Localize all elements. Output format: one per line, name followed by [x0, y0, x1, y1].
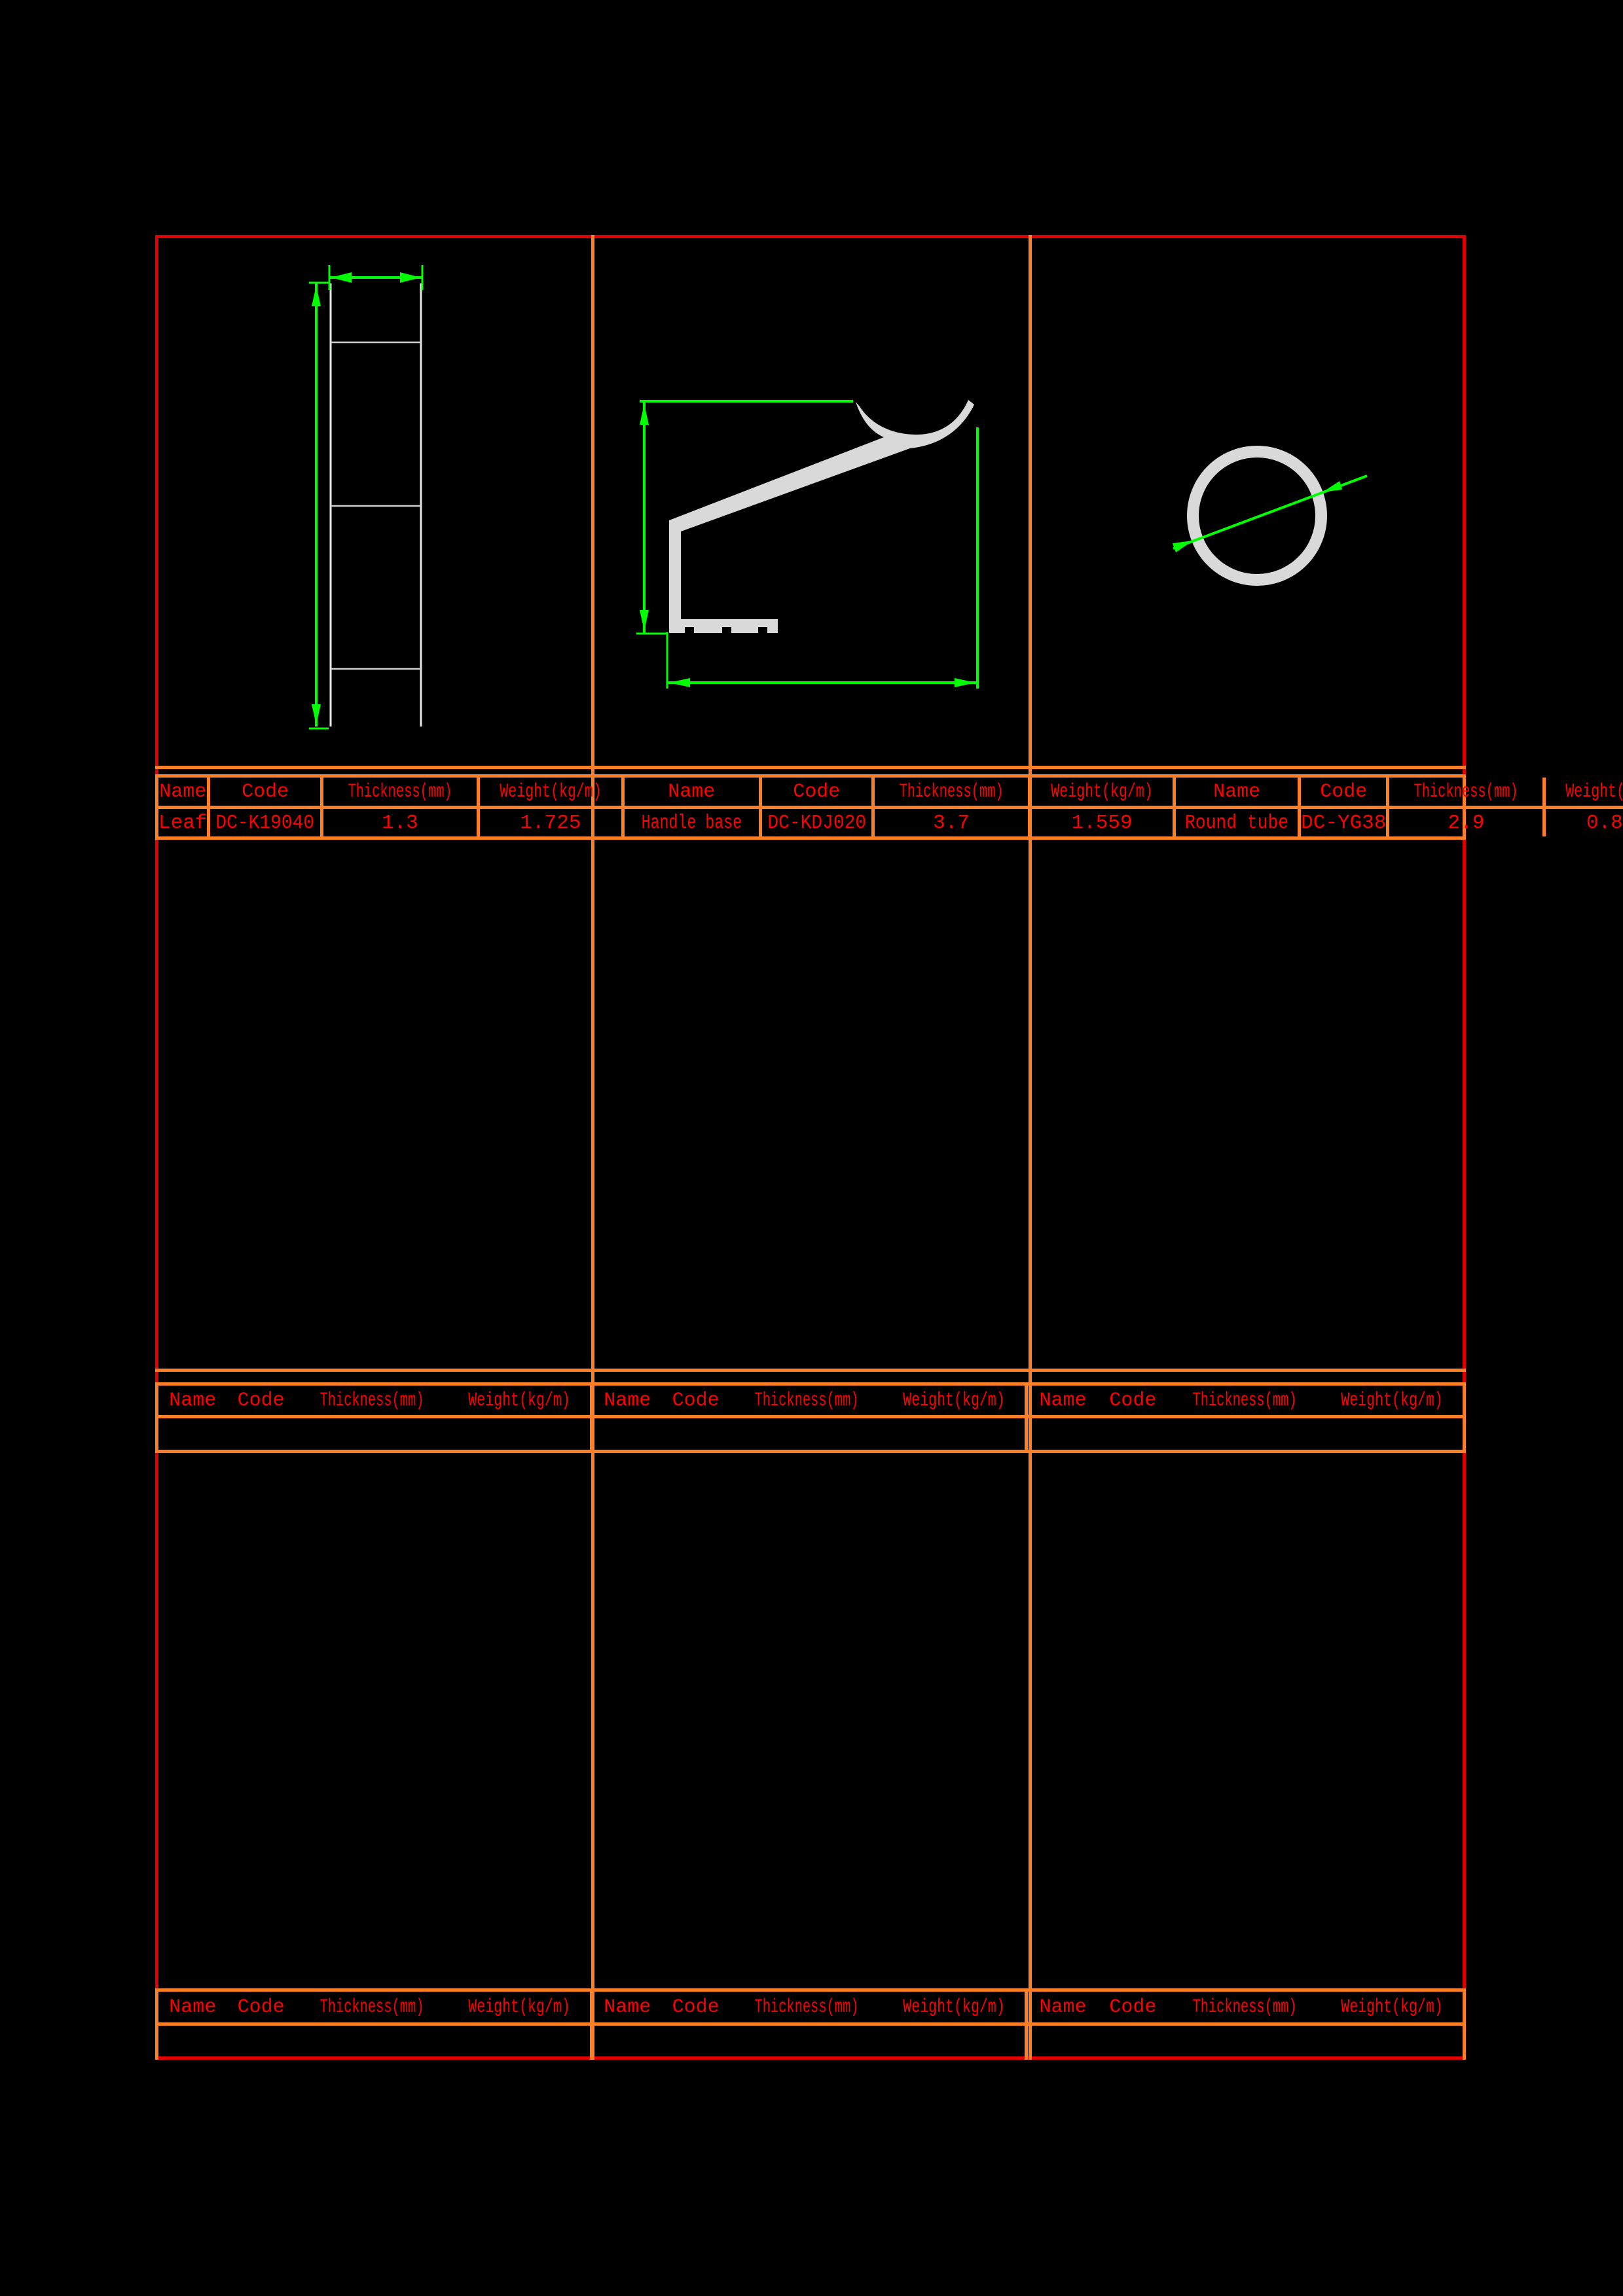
- value-weight: 0.863: [1546, 809, 1623, 836]
- spec-panel-handle-base: Name Code Thickness(mm) Weight(kg/m) Han…: [625, 778, 1176, 836]
- empty-data-row: [593, 1418, 1025, 1450]
- header-weight: Weight(kg/m): [1546, 778, 1623, 809]
- value-thickness: 2.9: [1389, 809, 1546, 836]
- row-separator-2: [155, 1369, 1466, 1372]
- spec-table-bottom: Name Code Thickness(mm) Weight(kg/m) Nam…: [155, 1988, 1466, 2060]
- spec-panel-empty: Name Code Thickness(mm) Weight(kg/m): [1028, 1992, 1463, 2060]
- value-code: DC-KDJ020: [762, 809, 875, 836]
- spec-panel-empty: Name Code Thickness(mm) Weight(kg/m): [593, 1386, 1028, 1450]
- value-weight: 1.559: [1031, 809, 1173, 836]
- header-name: Name: [1176, 778, 1301, 809]
- panel-divider-2: [1029, 235, 1032, 2060]
- spec-table-top: Name Code Thickness(mm) Weight(kg/m) Lea…: [155, 774, 1466, 840]
- header-code: Code: [227, 1992, 295, 2026]
- header-name: Name: [593, 1386, 661, 1418]
- spec-panel-empty: Name Code Thickness(mm) Weight(kg/m): [1028, 1386, 1463, 1450]
- empty-data-row: [158, 2026, 590, 2060]
- header-thickness: Thickness(mm): [1168, 1992, 1321, 2026]
- spec-panel-leaf: Name Code Thickness(mm) Weight(kg/m) Lea…: [158, 778, 625, 836]
- sheet-outer-border: [155, 235, 1466, 2060]
- spec-panel-empty: Name Code Thickness(mm) Weight(kg/m): [158, 1386, 593, 1450]
- header-code: Code: [762, 778, 875, 809]
- value-code: DC-K19040: [210, 809, 323, 836]
- header-name: Name: [158, 1992, 227, 2026]
- header-thickness: Thickness(mm): [295, 1992, 448, 2026]
- panel-divider-1: [591, 235, 594, 2060]
- empty-data-row: [1028, 2026, 1463, 2060]
- header-thickness: Thickness(mm): [323, 778, 480, 809]
- header-name: Name: [1028, 1992, 1098, 2026]
- value-weight: 1.725: [480, 809, 621, 836]
- header-thickness: Thickness(mm): [1168, 1386, 1321, 1418]
- header-weight: Weight(kg/m): [883, 1386, 1025, 1418]
- header-code: Code: [1098, 1386, 1168, 1418]
- header-weight: Weight(kg/m): [1321, 1992, 1463, 2026]
- header-weight: Weight(kg/m): [448, 1386, 590, 1418]
- value-name: Handle base: [625, 809, 762, 836]
- header-thickness: Thickness(mm): [730, 1992, 883, 2026]
- header-code: Code: [1098, 1992, 1168, 2026]
- header-weight: Weight(kg/m): [448, 1992, 590, 2026]
- header-thickness: Thickness(mm): [1389, 778, 1546, 809]
- empty-data-row: [593, 2026, 1025, 2060]
- value-name: Round tube: [1176, 809, 1301, 836]
- header-weight: Weight(kg/m): [1321, 1386, 1463, 1418]
- header-weight: Weight(kg/m): [480, 778, 621, 809]
- empty-data-row: [158, 1418, 590, 1450]
- value-name: Leaf: [158, 809, 210, 836]
- header-thickness: Thickness(mm): [875, 778, 1031, 809]
- header-thickness: Thickness(mm): [730, 1386, 883, 1418]
- header-code: Code: [227, 1386, 295, 1418]
- empty-data-row: [1028, 1418, 1463, 1450]
- header-thickness: Thickness(mm): [295, 1386, 448, 1418]
- header-code: Code: [1301, 778, 1389, 809]
- header-code: Code: [210, 778, 323, 809]
- spec-panel-empty: Name Code Thickness(mm) Weight(kg/m): [158, 1992, 593, 2060]
- header-name: Name: [158, 778, 210, 809]
- header-code: Code: [661, 1386, 729, 1418]
- value-thickness: 3.7: [875, 809, 1031, 836]
- value-thickness: 1.3: [323, 809, 480, 836]
- cad-sheet: Name Code Thickness(mm) Weight(kg/m) Lea…: [0, 0, 1623, 2296]
- header-code: Code: [661, 1992, 729, 2026]
- spec-panel-round-tube: Name Code Thickness(mm) Weight(kg/m) Rou…: [1176, 778, 1623, 836]
- header-name: Name: [593, 1992, 661, 2026]
- value-code: DC-YG38: [1301, 809, 1389, 836]
- header-name: Name: [158, 1386, 227, 1418]
- row-separator-1: [155, 766, 1466, 769]
- header-weight: Weight(kg/m): [883, 1992, 1025, 2026]
- spec-panel-empty: Name Code Thickness(mm) Weight(kg/m): [593, 1992, 1028, 2060]
- header-name: Name: [625, 778, 762, 809]
- spec-table-middle: Name Code Thickness(mm) Weight(kg/m) Nam…: [155, 1382, 1466, 1453]
- header-name: Name: [1028, 1386, 1098, 1418]
- header-weight: Weight(kg/m): [1031, 778, 1173, 809]
